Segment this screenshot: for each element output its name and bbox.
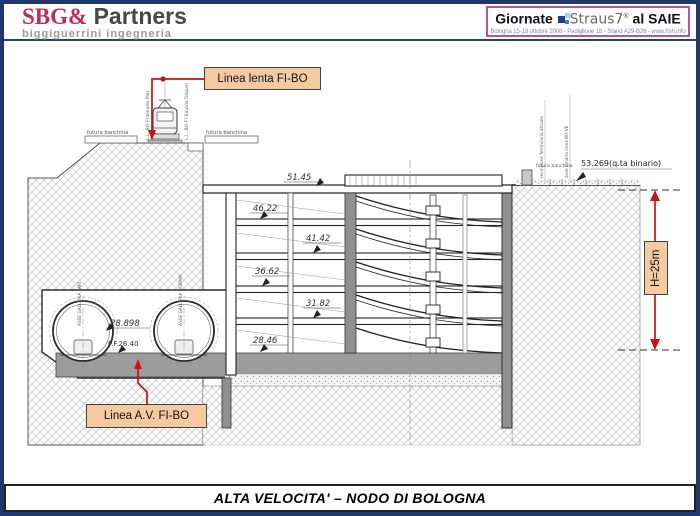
event-word-straus7: Straus7 xyxy=(570,12,624,28)
pf-label: P.F.26.40 xyxy=(108,340,139,348)
event-word-giornate: Giornate xyxy=(495,11,556,27)
straus7-icon xyxy=(557,13,570,25)
elevation-label: 36.62 xyxy=(255,267,279,277)
company-logo: SBG& Partners biggiguerrini ingegneria xyxy=(22,5,187,40)
callout-linea-av: Linea A.V. FI-BO xyxy=(86,404,207,428)
tunnel-axis-right-label: ASSE GALLERIA DISPARI xyxy=(178,274,184,326)
tunnel-axis-left-label: ASSE GALLERIA PARI xyxy=(77,282,83,326)
banchina-right-label: futura banchina xyxy=(206,130,247,136)
brand-tagline: biggiguerrini ingegneria xyxy=(22,29,187,40)
event-word-saie: al SAIE xyxy=(629,11,681,27)
slide: SBG& Partners biggiguerrini ingegneria G… xyxy=(0,0,700,516)
soil-right xyxy=(512,185,640,445)
track-left-label: L.L. BO-FI binario Pari xyxy=(145,91,151,140)
brand-rest: Partners xyxy=(87,3,187,29)
event-logo-box: Giornate Straus7® al SAIE Bologna 15-18 … xyxy=(486,6,690,37)
foundation-stipple-band xyxy=(225,374,512,386)
track-slab xyxy=(56,353,502,377)
existing-axis-label: asse binario linea BO-VE xyxy=(564,125,570,178)
soil-bottom-center xyxy=(203,386,512,445)
elevation-label: 51.45 xyxy=(287,173,311,183)
callout-linea-lenta: Linea lenta FI-BO xyxy=(204,67,321,90)
callout-height-dim: H=25m xyxy=(644,241,668,295)
slide-title: ALTA VELOCITA' – NODO DI BOLOGNA xyxy=(214,490,486,506)
elevation-label: 28.46 xyxy=(253,336,278,346)
surface-train-area xyxy=(85,82,258,151)
track-elevation-label: 53.269(q.ta binario) xyxy=(581,159,661,168)
elevation-label: 41.42 xyxy=(306,234,330,244)
brand-accent: SBG& xyxy=(22,4,87,29)
header: SBG& Partners biggiguerrini ingegneria G… xyxy=(4,4,696,41)
event-title: Giornate Straus7® al SAIE xyxy=(488,9,688,28)
event-subtitle: Bologna 15-18 ottobre 2008 - Padiglione … xyxy=(488,28,688,37)
section-drawing: 51.45 46.22 41.42 36.62 31.82 28.46 28.8… xyxy=(0,0,700,516)
footer-bar: ALTA VELOCITA' – NODO DI BOLOGNA xyxy=(4,484,696,512)
elevation-label: 31.82 xyxy=(306,299,330,309)
surface-right-area xyxy=(516,95,640,185)
track-right-label: L.L. BO-FI Binario Dispari xyxy=(184,83,190,140)
tunnel-elevation-label: 28.898 xyxy=(110,319,140,329)
banchina-left-label: futura banchina xyxy=(87,130,128,136)
fence-label: recinzione ferroviaria attuale xyxy=(539,116,545,178)
